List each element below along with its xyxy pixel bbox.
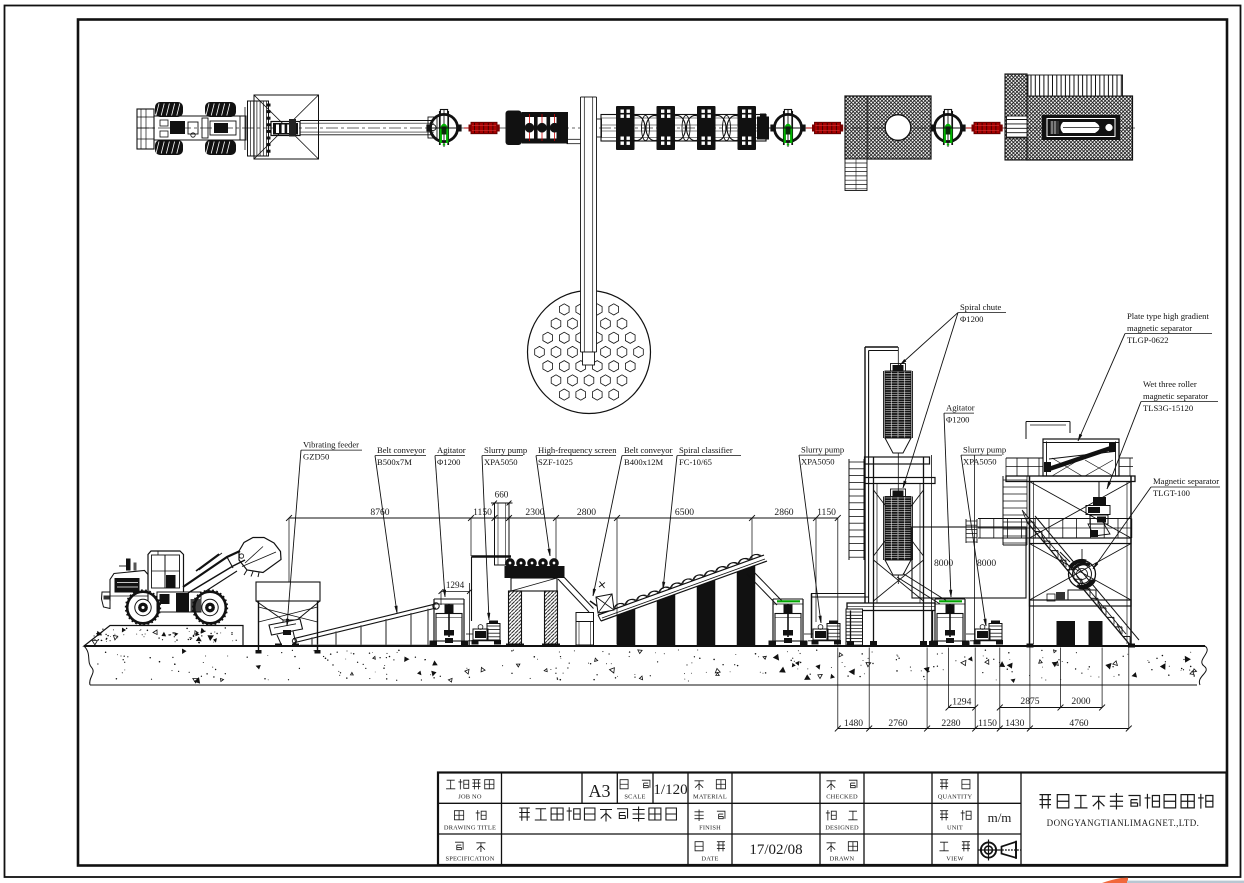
- svg-text:2300: 2300: [525, 507, 544, 518]
- svg-text:VIEW: VIEW: [946, 855, 964, 862]
- svg-text:1150: 1150: [817, 507, 836, 518]
- svg-text:GZD50: GZD50: [303, 452, 329, 462]
- svg-text:1/120: 1/120: [653, 782, 687, 798]
- svg-text:2760: 2760: [888, 718, 907, 729]
- svg-text:B500x7M: B500x7M: [377, 457, 412, 467]
- svg-text:CHECKED: CHECKED: [826, 793, 858, 800]
- svg-text:JOB NO: JOB NO: [458, 793, 482, 800]
- svg-text:2800: 2800: [577, 507, 596, 518]
- svg-text:2000: 2000: [1071, 696, 1090, 707]
- svg-text:FC-10/65: FC-10/65: [679, 457, 712, 467]
- svg-text:Magnetic separator: Magnetic separator: [1153, 476, 1219, 486]
- svg-text:A3: A3: [589, 781, 611, 801]
- svg-text:Slurry pump: Slurry pump: [484, 445, 527, 455]
- svg-text:1150: 1150: [473, 507, 492, 518]
- svg-text:XPA5050: XPA5050: [963, 457, 997, 467]
- svg-text:TLGP-0622: TLGP-0622: [1127, 335, 1169, 345]
- svg-text:magnetic separator: magnetic separator: [1143, 391, 1208, 401]
- svg-text:4760: 4760: [1069, 718, 1088, 729]
- svg-text:Φ1200: Φ1200: [437, 457, 460, 467]
- svg-text:Slurry pump: Slurry pump: [963, 445, 1006, 455]
- svg-text:m/m: m/m: [988, 810, 1012, 825]
- svg-text:Belt conveyor: Belt conveyor: [624, 445, 673, 455]
- svg-text:SZF-1025: SZF-1025: [538, 457, 573, 467]
- svg-text:Spiral classifier: Spiral classifier: [679, 445, 733, 455]
- svg-text:TLS3G-15120: TLS3G-15120: [1143, 403, 1193, 413]
- svg-text:1480: 1480: [844, 718, 863, 729]
- svg-text:QUANTITY: QUANTITY: [938, 793, 973, 800]
- svg-text:Slurry pump: Slurry pump: [801, 445, 844, 455]
- svg-text:1294: 1294: [952, 697, 971, 708]
- svg-text:XPA5050: XPA5050: [801, 457, 835, 467]
- svg-text:DONGYANGTIANLIMAGNET.,LTD.: DONGYANGTIANLIMAGNET.,LTD.: [1047, 818, 1200, 828]
- svg-text:17/02/08: 17/02/08: [749, 842, 802, 858]
- svg-text:SPECIFICATION: SPECIFICATION: [445, 855, 494, 862]
- svg-text:Agitator: Agitator: [946, 403, 975, 413]
- svg-text:TLGT-100: TLGT-100: [1153, 488, 1190, 498]
- svg-text:DATE: DATE: [701, 855, 718, 862]
- svg-text:FINISH: FINISH: [699, 824, 721, 831]
- svg-text:1294: 1294: [446, 580, 465, 590]
- svg-text:8000: 8000: [934, 558, 953, 569]
- svg-text:XPA5050: XPA5050: [484, 457, 518, 467]
- svg-text:8760: 8760: [370, 507, 389, 518]
- svg-text:6500: 6500: [675, 507, 694, 518]
- svg-text:660: 660: [495, 490, 509, 500]
- svg-text:Belt conveyor: Belt conveyor: [377, 445, 426, 455]
- svg-text:8000: 8000: [977, 558, 996, 569]
- svg-text:2280: 2280: [941, 718, 960, 729]
- svg-text:Plate type high gradient: Plate type high gradient: [1127, 311, 1209, 321]
- svg-text:Φ1200: Φ1200: [960, 314, 983, 324]
- svg-text:Φ1200: Φ1200: [946, 415, 969, 425]
- svg-text:DESIGNED: DESIGNED: [825, 824, 859, 831]
- svg-text:Wet three roller: Wet three roller: [1143, 379, 1197, 389]
- svg-text:B400x12M: B400x12M: [624, 457, 664, 467]
- svg-text:DRAWING TITLE: DRAWING TITLE: [444, 824, 496, 831]
- svg-text:High-frequency screen: High-frequency screen: [538, 445, 617, 455]
- svg-text:MATERIAL: MATERIAL: [693, 793, 727, 800]
- svg-text:magnetic separator: magnetic separator: [1127, 323, 1192, 333]
- svg-text:2860: 2860: [774, 507, 793, 518]
- svg-text:UNIT: UNIT: [947, 824, 963, 831]
- svg-text:1430: 1430: [1005, 718, 1024, 729]
- svg-text:Vibrating feeder: Vibrating feeder: [303, 440, 359, 450]
- svg-text:Spiral chute: Spiral chute: [960, 302, 1001, 312]
- svg-text:Agitator: Agitator: [437, 445, 466, 455]
- svg-text:1150: 1150: [978, 718, 997, 729]
- svg-text:DRAWN: DRAWN: [830, 855, 855, 862]
- svg-text:SCALE: SCALE: [624, 793, 645, 800]
